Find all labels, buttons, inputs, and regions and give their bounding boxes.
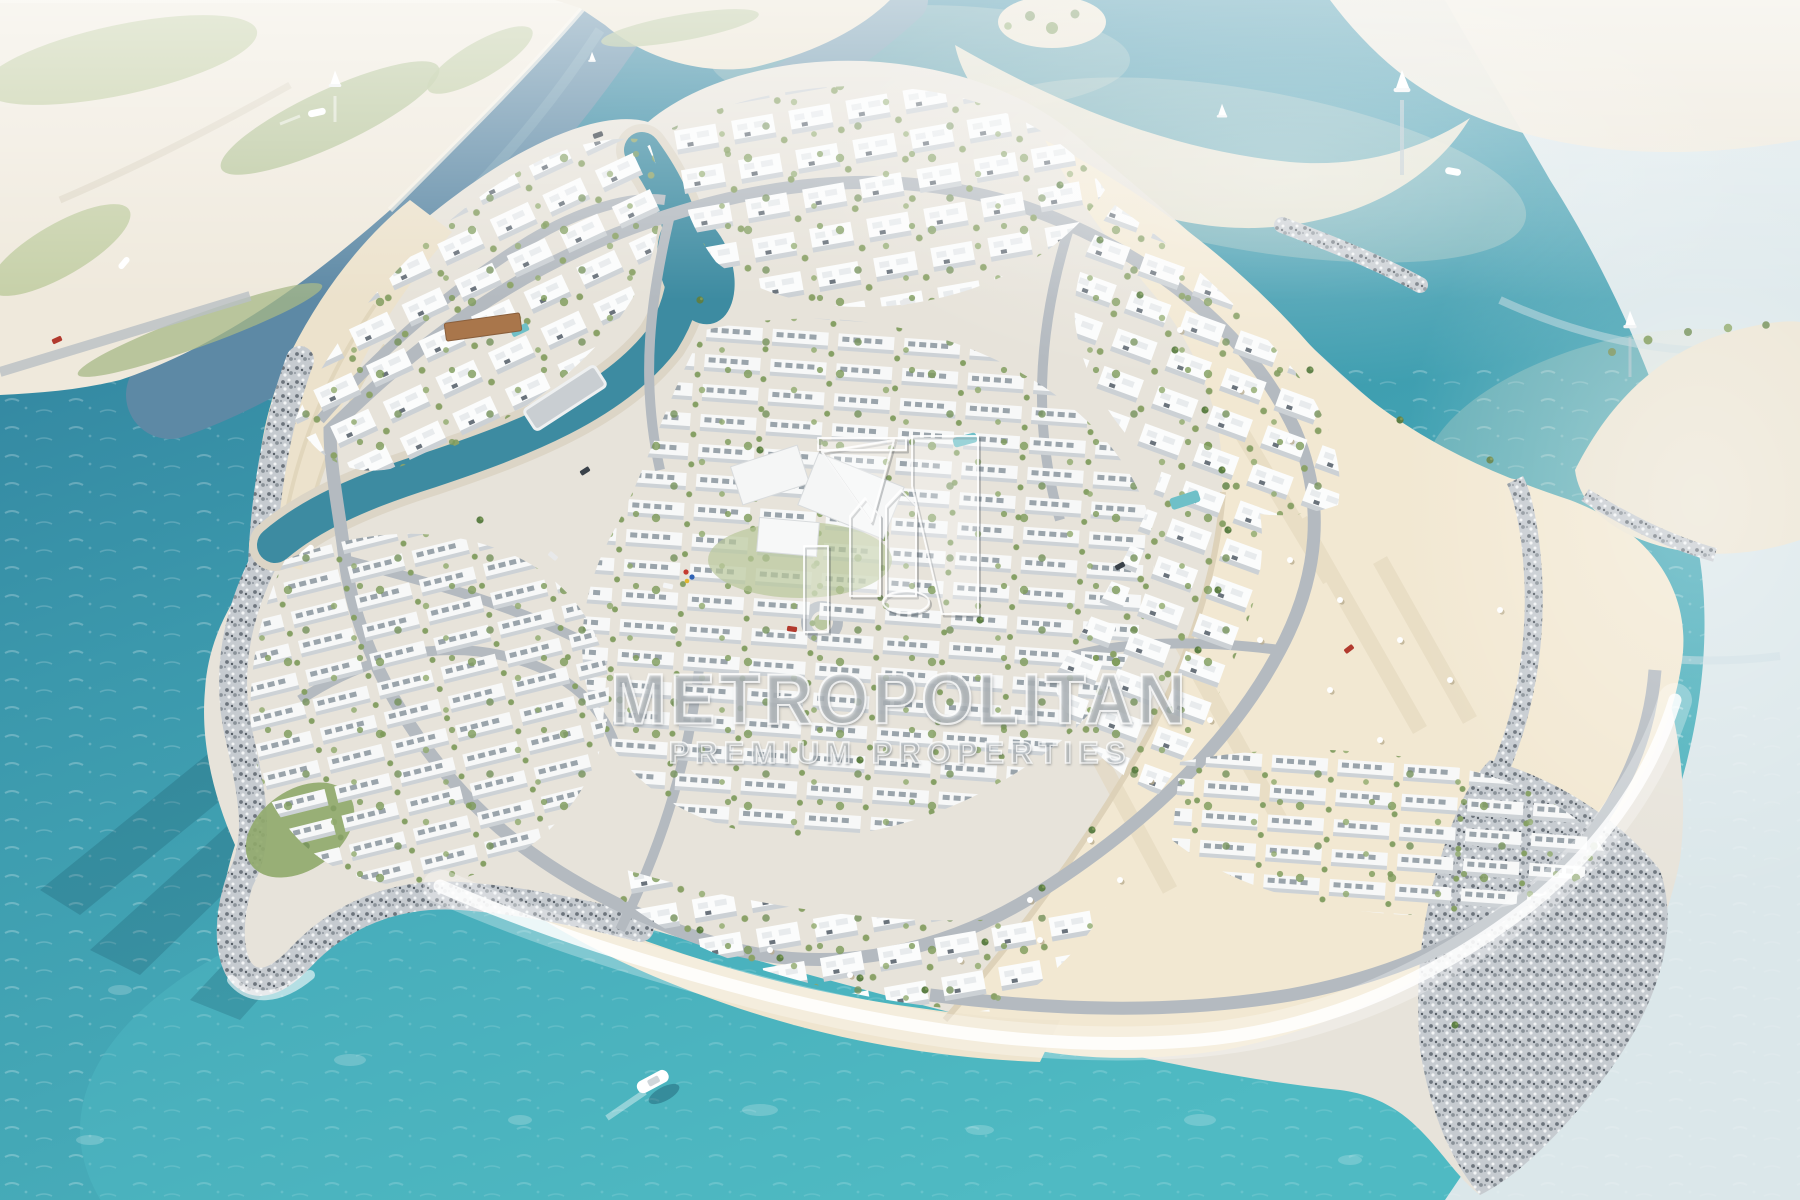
aerial-render: METROPOLITAN PREMIUM PROPERTIES (0, 0, 1800, 1200)
scene-svg (0, 0, 1800, 1200)
